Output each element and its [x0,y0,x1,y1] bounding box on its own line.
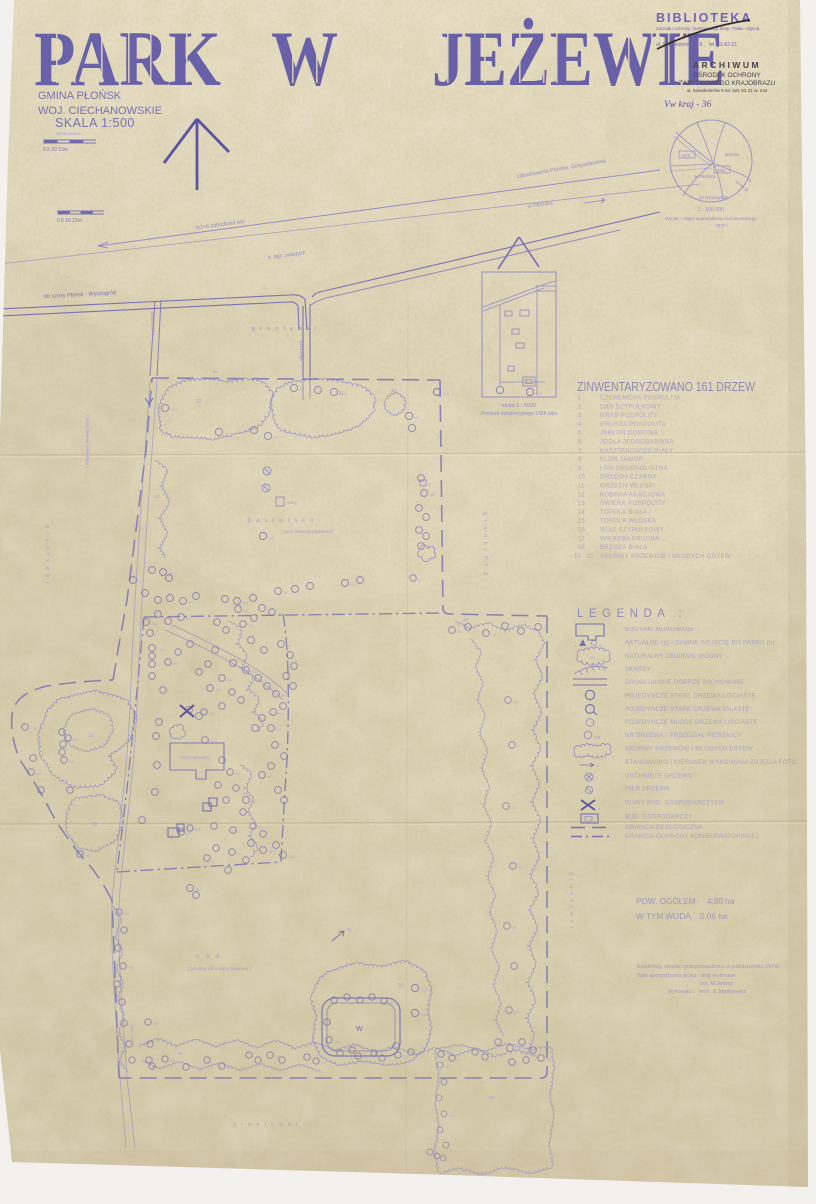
svg-text:9/3: 9/3 [138,580,143,584]
svg-text:0 5 10 15m: 0 5 10 15m [57,218,82,224]
svg-text:9/9: 9/9 [69,760,74,764]
svg-text:4/5: 4/5 [267,775,272,779]
svg-text:8/4: 8/4 [511,806,516,810]
svg-text:25: 25 [512,926,516,930]
svg-text:7/3: 7/3 [546,1058,551,1062]
svg-text:W: W [590,655,594,660]
svg-text:WIERZBA KRUCHA: WIERZBA KRUCHA [600,536,660,542]
svg-text:8/4: 8/4 [73,738,78,742]
svg-text:STANOWISKO I KIERUNEK WYKONANI: STANOWISKO I KIERUNEK WYKONANIA ZDJĘCIA … [625,760,797,766]
svg-text:g r u n t y w s i: g r u n t y w s i [233,1122,299,1128]
svg-text:RUINY BUD. GOSPODARCZYCH: RUINY BUD. GOSPODARCZYCH [625,801,724,807]
svg-text:ŚWIERK POSPOLITY: ŚWIERK POSPOLITY [600,499,666,507]
svg-text:ul. Szwoleżerów 9 tel. 621 62: ul. Szwoleżerów 9 tel. 621 62 41 w. 244 [687,88,768,93]
svg-text:NATURALNY ZBIORNIK WODNY: NATURALNY ZBIORNIK WODNY [625,654,723,660]
svg-text:Spis sporządzono przez : mg: Spis sporządzono przez : mgr Hofmana [637,973,736,979]
svg-text:opracowano: opracowano [56,131,81,136]
svg-text:Wycięc z Mapy województwa ciec: Wycięc z Mapy województwa ciechanowskieg… [665,216,757,221]
svg-text:21/2: 21/2 [157,648,164,652]
svg-text:stary: stary [287,500,298,505]
svg-text:POJEDYNCZE STARE DRZEWA IGLAST: POJEDYNCZE STARE DRZEWA IGLASTE [625,707,750,713]
svg-text:6/4: 6/4 [414,416,419,420]
svg-text:23: 23 [88,733,94,739]
svg-text:POJEDYNCZE STARE DRZEWA LIŚCIA: POJEDYNCZE STARE DRZEWA LIŚCIASTE [625,692,756,700]
svg-text:5: 5 [517,745,519,749]
svg-text:15/3: 15/3 [288,855,295,859]
svg-text:do Wyszogrodu: do Wyszogrodu [699,195,729,200]
svg-text:0 5 10 15m: 0 5 10 15m [43,147,68,153]
svg-text:7/4: 7/4 [286,644,291,648]
svg-text:11: 11 [347,927,352,932]
svg-text:GRANICA EKOLOGICZNA: GRANICA EKOLOGICZNA [625,825,703,831]
svg-text:9/4: 9/4 [389,1001,394,1005]
svg-text:10/4: 10/4 [535,392,542,396]
svg-text:CZEREMCHA POSPOLITA: CZEREMCHA POSPOLITA [600,396,681,402]
svg-text:12: 12 [578,492,585,498]
svg-text:1 : 100 000: 1 : 100 000 [698,207,724,213]
svg-text:19 - 20: 19 - 20 [574,554,593,560]
svg-text:1/5: 1/5 [429,493,434,497]
svg-text:GRANICA OCHRONY KONSERWATORS: GRANICA OCHRONY KONSERWATORSKIEJ [625,834,759,840]
svg-text:9/4: 9/4 [237,852,242,856]
svg-text:16: 16 [578,528,585,534]
svg-text:34/2: 34/2 [170,408,177,412]
svg-text:8/3: 8/3 [457,630,462,634]
svg-text:11/4: 11/4 [420,1013,427,1017]
svg-text:17: 17 [578,536,585,542]
svg-text:10: 10 [578,475,585,481]
svg-text:10/3: 10/3 [277,612,284,616]
svg-text:7/3: 7/3 [518,866,523,870]
svg-text:W TYM WODA 0,06 ha: W TYM WODA 0,06 ha [636,912,728,921]
svg-text:g r u n t y w s i: g r u n t y w s i [44,525,50,584]
svg-text:9/3: 9/3 [227,678,232,682]
svg-text:6/4: 6/4 [403,1055,408,1059]
svg-text:1982: 1982 [716,168,726,173]
svg-text:5/5: 5/5 [188,601,193,605]
svg-text:5/4: 5/4 [321,1061,326,1065]
svg-text:TOPOLA WŁOSKA: TOPOLA WŁOSKA [600,519,656,525]
svg-text:BUD. GOSPODARCZY: BUD. GOSPODARCZY [625,815,692,821]
svg-text:8/3: 8/3 [173,662,178,666]
svg-text:6: 6 [442,1156,444,1160]
svg-text:Pomiaru ewidencyjnego 1958 rok: Pomiaru ewidencyjnego 1958 roku [481,411,558,417]
svg-text:7/4: 7/4 [363,1056,368,1060]
svg-text:9/3: 9/3 [153,1022,158,1026]
svg-text:12/2: 12/2 [215,688,222,692]
svg-text:11/3: 11/3 [420,988,427,992]
svg-text:7/4: 7/4 [283,591,288,595]
svg-text:9/3: 9/3 [543,627,548,631]
svg-text:9/3: 9/3 [227,1066,232,1070]
svg-text:TOPOLA BIAŁA: TOPOLA BIAŁA [600,510,647,516]
svg-text:DROGI DAWNE DOBRZE ZACHOWANE: DROGI DAWNE DOBRZE ZACHOWANE [625,680,744,686]
svg-text:( teren dawnego pastwiska ): ( teren dawnego pastwiska ) [281,529,334,534]
svg-text:POW. OGÓŁEM 4,90 ha: POW. OGÓŁEM 4,90 ha [636,896,735,906]
svg-text:ZINWENTARYZOWANO 161 DRZEW: ZINWENTARYZOWANO 161 DRZEW [577,379,755,394]
svg-text:6/5: 6/5 [209,712,214,716]
svg-text:1970: 1970 [681,153,691,158]
svg-text:9/4: 9/4 [457,1058,462,1062]
svg-text:1979 r.: 1979 r. [716,223,729,228]
svg-text:g r u n t y P F Z: g r u n t y P F Z [482,512,488,577]
svg-text:g r u n t y w s i: g r u n t y w s i [568,872,574,930]
svg-text:Jeżewo: Jeżewo [725,152,740,157]
svg-text:ROBINIA AKACJOWA: ROBINIA AKACJOWA [600,492,666,498]
svg-text:POJEDYNCZE MŁODE DRZEWA LIŚCIA: POJEDYNCZE MŁODE DRZEWA LIŚCIASTE [625,718,758,726]
svg-text:30: 30 [391,388,397,393]
svg-text:KLON JAWOR: KLON JAWOR [600,457,644,463]
svg-text:aleja dojazd.: aleja dojazd. [130,1026,135,1047]
svg-text:7/4: 7/4 [273,436,278,440]
svg-text:8/4: 8/4 [350,583,355,587]
svg-text:SKALA 1:500: SKALA 1:500 [55,116,135,130]
svg-text:20: 20 [178,1051,184,1056]
svg-text:6/3: 6/3 [242,601,247,605]
svg-text:4/5: 4/5 [445,1065,450,1069]
svg-text:PARK: PARK [34,15,221,102]
svg-text:7/3: 7/3 [128,966,133,970]
svg-text:4/5: 4/5 [36,772,41,776]
svg-text:8/3: 8/3 [243,609,248,613]
svg-text:DĄB SZYPUŁKOWY: DĄB SZYPUŁKOWY [600,404,661,410]
svg-text:ZABYTKOWEGO KRAJOBRAZU: ZABYTKOWEGO KRAJOBRAZU [679,80,776,87]
svg-text:GRUSZA POSPOLITA: GRUSZA POSPOLITA [600,422,666,428]
svg-text:13: 13 [578,501,585,507]
svg-text:SKUPINY KRZEWÓW I MŁODYCH DRZE: SKUPINY KRZEWÓW I MŁODYCH DRZEW [625,746,753,753]
svg-text:6/4: 6/4 [514,1010,519,1014]
svg-text:8/3: 8/3 [281,694,286,698]
svg-text:W: W [271,15,338,102]
svg-text:Ewidencję obiektu przeprowad: Ewidencję obiektu przeprowadzono w paźdz… [637,964,780,970]
svg-text:16/2: 16/2 [151,622,158,626]
svg-text:3/6: 3/6 [449,1114,454,1118]
svg-text:Vw kraj - 36: Vw kraj - 36 [664,100,711,110]
svg-text:WIĄZ SZYPUŁKOWY: WIĄZ SZYPUŁKOWY [600,528,664,534]
svg-text:7/4: 7/4 [195,644,200,648]
svg-text:4: 4 [157,664,159,668]
svg-text:GMINA PŁOŃSK: GMINA PŁOŃSK [38,89,122,102]
svg-text:6: 6 [418,578,420,582]
svg-text:JABŁOŃ DOMOWA: JABŁOŃ DOMOWA [600,430,658,437]
svg-text:15: 15 [489,1095,495,1100]
svg-text:GRAB POSPOLITY: GRAB POSPOLITY [600,413,658,419]
svg-text:s a d: s a d [196,954,222,960]
svg-text:8/4: 8/4 [299,388,304,392]
svg-text:9/4: 9/4 [186,617,191,621]
svg-text:7/4: 7/4 [491,633,496,637]
svg-text:do Płońska: do Płońska [694,174,715,179]
svg-text:ARCHIWUM: ARCHIWUM [693,60,761,70]
svg-text:inż. M.Jędras: inż. M.Jędras [700,981,733,987]
svg-text:BUDYNKI MUROWANE: BUDYNKI MUROWANE [625,627,694,633]
svg-text:7/3: 7/3 [258,826,263,830]
svg-text:JODŁA JEDNOBARWNA: JODŁA JEDNOBARWNA [600,440,674,446]
svg-text:LEGENDA :: LEGENDA : [577,608,687,620]
svg-text:4: 4 [428,483,430,487]
svg-text:5/4: 5/4 [276,728,281,732]
svg-text:28: 28 [463,617,469,622]
svg-text:PIEŃ DRZEWA: PIEŃ DRZEWA [625,786,670,793]
svg-text:wykonała : tech. G.Markiewi: wykonała : tech. G.Markiewicz [667,989,747,995]
svg-text:SKUPINY KRZEWÓW I MŁODYCH DRZE: SKUPINY KRZEWÓW I MŁODYCH DRZEW [600,553,731,560]
svg-text:8/4: 8/4 [195,828,200,832]
svg-text:18/3: 18/3 [268,850,275,854]
svg-text:24/2: 24/2 [30,727,37,731]
svg-text:USCHNIĘTE DRZEWO: USCHNIĘTE DRZEWO [625,774,693,780]
svg-text:7/4: 7/4 [248,624,253,628]
svg-text:5/4: 5/4 [268,536,273,540]
svg-text:5/4: 5/4 [124,912,129,916]
svg-text:6/4: 6/4 [235,772,240,776]
svg-text:g r u n t y w s i: g r u n t y w s i [252,326,318,332]
svg-text:10/4: 10/4 [339,392,346,396]
svg-text:OŚRODEK OCHRONY: OŚRODEK OCHRONY [693,70,761,79]
svg-text:20: 20 [398,983,404,989]
svg-text:37: 37 [155,494,161,499]
svg-text:KASZTANOWIEC BIAŁY: KASZTANOWIEC BIAŁY [600,448,673,454]
svg-text:6/4: 6/4 [278,712,283,716]
svg-text:( teren dawnej zabudowy ): ( teren dawnej zabudowy ) [85,415,90,468]
svg-text:8/4: 8/4 [213,370,218,374]
svg-text:ORZECH WŁOSKI: ORZECH WŁOSKI [600,484,656,490]
svg-text:W: W [356,1026,363,1033]
svg-text:6/4: 6/4 [186,832,191,836]
svg-text:11/4: 11/4 [442,392,449,396]
svg-text:p a s t w i s k o: p a s t w i s k o [248,518,315,524]
svg-text:LIPA DROBNOLISTNA: LIPA DROBNOLISTNA [600,466,668,472]
svg-text:37: 37 [196,399,202,405]
svg-text:4/5: 4/5 [594,735,601,740]
svg-text:skala 1 : 5000: skala 1 : 5000 [502,403,536,409]
svg-text:3/6: 3/6 [85,854,90,858]
svg-text:14: 14 [578,510,585,516]
svg-text:15: 15 [578,519,585,525]
svg-text:dwór murowany: dwór murowany [180,755,210,760]
svg-text:7/4: 7/4 [334,1040,339,1044]
svg-text:6/4: 6/4 [170,1059,175,1063]
svg-text:b: b [155,402,157,406]
svg-text:9/3: 9/3 [251,670,256,674]
svg-text:22: 22 [92,822,98,828]
svg-text:ORZECH CZARNY: ORZECH CZARNY [600,475,657,481]
svg-text:SKARPY: SKARPY [625,667,651,673]
svg-text:18: 18 [578,545,585,551]
svg-text:9/4: 9/4 [513,700,518,704]
svg-text:21: 21 [243,791,249,796]
svg-text:BRZOZA BIAŁA: BRZOZA BIAŁA [600,545,647,551]
svg-text:AKTUALNE (a) I DAWNE WEJŚCIE D: AKTUALNE (a) I DAWNE WEJŚCIE DO PARKU (b… [625,639,775,647]
svg-text:NR DRZEWA / PRZEDZIAŁ PIERŚNIC: NR DRZEWA / PRZEDZIAŁ PIERŚNICY [625,731,742,739]
svg-text:( przebieg pól II wojny św: ( przebieg pól II wojny światowej ) [188,966,251,971]
svg-text:11: 11 [578,484,585,490]
